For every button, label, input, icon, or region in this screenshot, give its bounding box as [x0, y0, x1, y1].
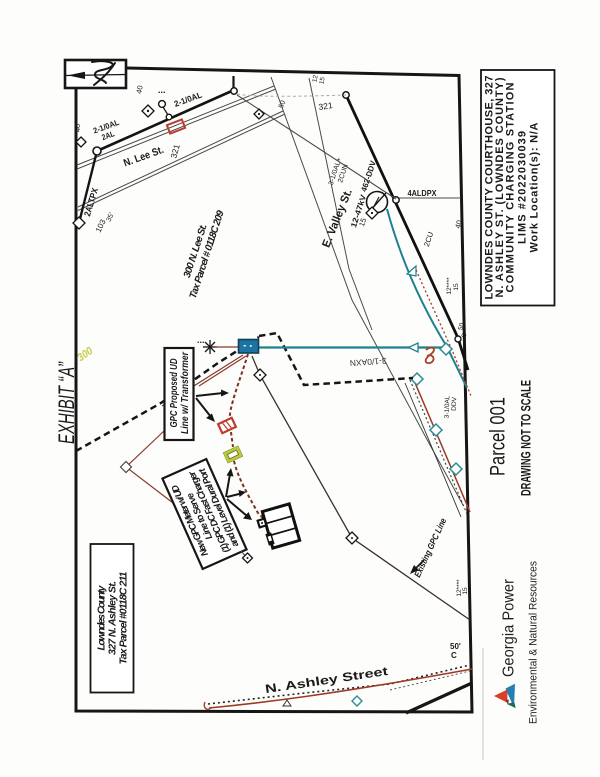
svg-text:GPC Proposed UD: GPC Proposed UD	[169, 359, 180, 428]
svg-text:DDV: DDV	[451, 396, 458, 411]
svg-text:4ALDPX: 4ALDPX	[408, 188, 437, 198]
svg-text:COMMUNITY CHARGING STATION: COMMUNITY CHARGING STATION	[505, 82, 517, 292]
svg-text:DRAWING NOT TO SCALE: DRAWING NOT TO SCALE	[519, 380, 534, 496]
svg-text:Work Location(s): N/A: Work Location(s): N/A	[529, 122, 541, 252]
svg-text:Line w/ Transformer: Line w/ Transformer	[180, 351, 191, 434]
svg-text:Georgia Power: Georgia Power	[501, 578, 518, 677]
svg-text:...: ...	[197, 335, 205, 345]
svg-text:EXHIBIT “A”: EXHIBIT “A”	[54, 361, 79, 444]
svg-text:50': 50'	[450, 642, 461, 651]
svg-text:Tax Parcel #0118C 211: Tax Parcel #0118C 211	[118, 571, 130, 664]
svg-text:Parcel 001: Parcel 001	[487, 397, 510, 476]
svg-text:...: ...	[158, 85, 166, 95]
svg-text:C: C	[451, 651, 457, 660]
svg-text:15: 15	[453, 283, 460, 291]
svg-text:15: 15	[462, 587, 469, 595]
svg-text:Environmental & Natural Resour: Environmental & Natural Resources	[528, 561, 540, 724]
svg-text:40: 40	[73, 124, 82, 132]
svg-text:LIMS #2022030039: LIMS #2022030039	[517, 131, 529, 244]
svg-text:321: 321	[318, 100, 334, 112]
svg-text:12****: 12****	[446, 277, 453, 295]
svg-text:40: 40	[134, 85, 144, 95]
